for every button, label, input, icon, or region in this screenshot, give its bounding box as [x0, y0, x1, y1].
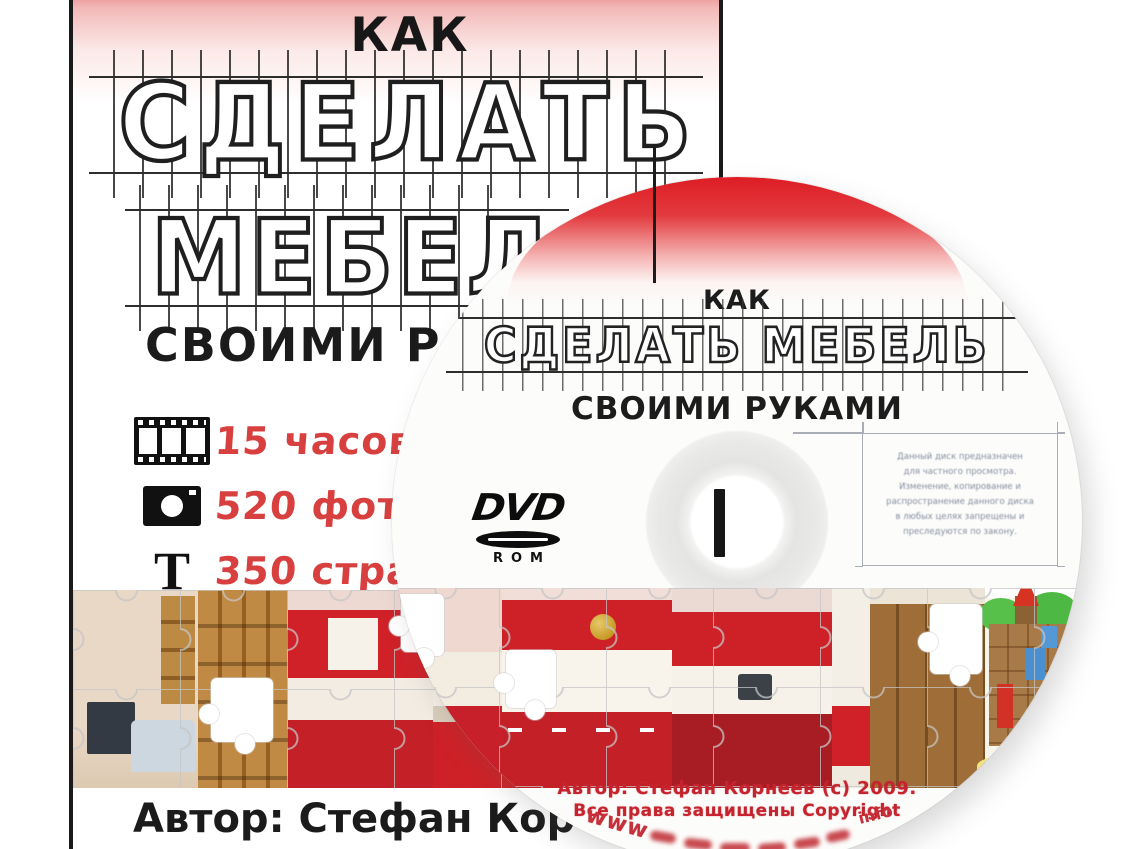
missing-puzzle-piece: [506, 650, 556, 708]
legal-line: Изменение, копирование и: [869, 480, 1051, 495]
legal-notice-box: Данный диск предназначен для частного пр…: [862, 433, 1058, 566]
cover-title-line1-blueprint: СДЕЛАТЬ: [73, 50, 719, 198]
photo-collage-strip: [392, 588, 1082, 788]
feature-list: 15 часов 520 фот T 350 стра: [129, 412, 414, 607]
dvd-rom-text: ROM: [458, 551, 578, 566]
legal-line: распространение данного диска: [869, 495, 1051, 510]
legal-line: преследуются по закону.: [869, 525, 1051, 540]
disc-title-blueprint: СДЕЛАТЬ МЕБЕЛЬ: [392, 299, 1082, 391]
spindle-bar: [714, 489, 725, 557]
cover-title-line1: СДЕЛАТЬ: [93, 62, 700, 185]
dvd-disc: КАК СДЕЛАТЬ МЕБЕЛЬ СВОИМИ РУКАМИ DVD ROM…: [392, 177, 1082, 849]
disc-rights-line: Все права защищены Copyright: [392, 801, 1082, 821]
blueprint-guide-line: [1057, 566, 1065, 568]
disc-center-hub: [645, 430, 829, 614]
url-blurred-text: [758, 842, 787, 849]
blueprint-guide-line: [1057, 432, 1065, 434]
camera-icon: [143, 486, 201, 526]
dvd-product-shot: КАК СДЕЛАТЬ МЕБЕЛ СВОИМИ Р 15 часов 520 …: [0, 0, 1132, 849]
dvd-rom-logo: DVD ROM: [458, 485, 578, 566]
feature-text: 520 фот: [213, 484, 401, 528]
disc-subtitle: СВОИМИ РУКАМИ: [392, 391, 1082, 427]
legal-line: Данный диск предназначен: [869, 450, 1051, 465]
feature-row-photo: 520 фот: [129, 477, 414, 535]
disc-author-line: Автор: Стефан Корнеев (с) 2009.: [392, 778, 1082, 799]
missing-puzzle-piece: [211, 678, 273, 742]
url-blurred-text: [825, 829, 851, 844]
film-strip-icon: [134, 417, 210, 465]
blueprint-guide-line: [1057, 422, 1059, 434]
feature-text: 350 стра: [213, 549, 414, 593]
legal-line: в любых целях запрещены и: [869, 510, 1051, 525]
blueprint-guide-line: [793, 432, 863, 434]
url-blurred-text: [793, 836, 820, 849]
url-blurred-text: [649, 830, 676, 844]
blueprint-guide-line: [855, 566, 863, 568]
blueprint-guideline: [653, 146, 656, 283]
disc-title: СДЕЛАТЬ МЕБЕЛЬ: [484, 317, 990, 374]
dvd-disc-icon: [476, 531, 560, 548]
feature-row-video: 15 часов: [129, 412, 414, 470]
legal-line: для частного просмотра.: [869, 465, 1051, 480]
missing-puzzle-piece: [396, 594, 444, 656]
blueprint-guide-line: [862, 422, 864, 434]
url-blurred-text: [684, 838, 713, 849]
url-blurred-text: [720, 843, 750, 849]
missing-puzzle-piece: [930, 604, 982, 674]
dvd-logo-text: DVD: [455, 487, 581, 529]
feature-text: 15 часов: [213, 419, 415, 463]
